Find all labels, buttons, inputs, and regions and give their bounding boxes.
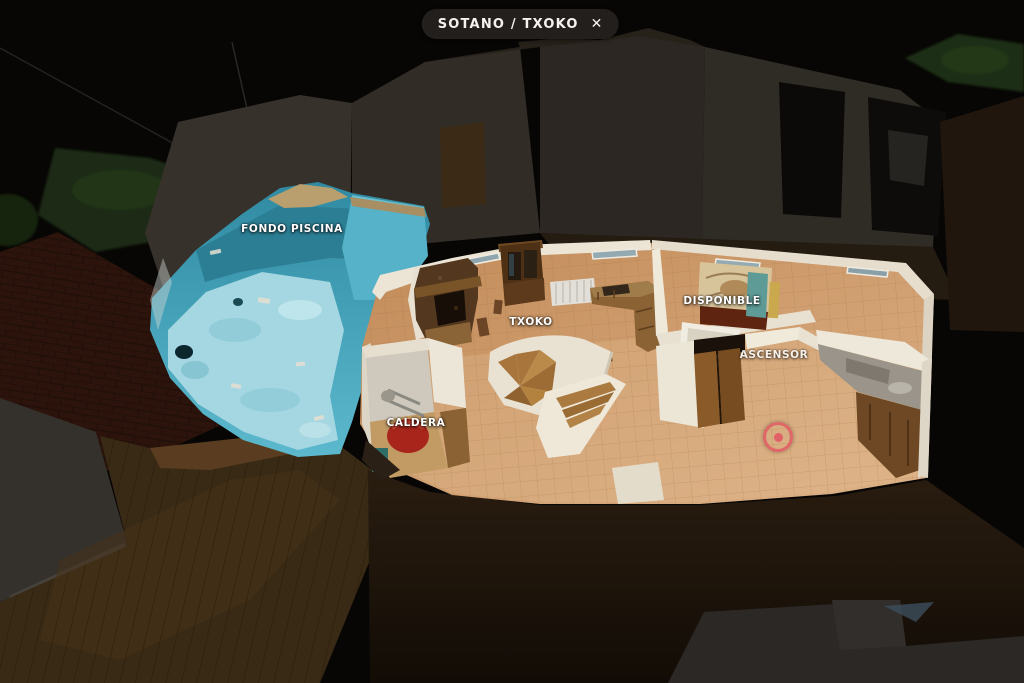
panorama-marker-dot <box>774 433 783 442</box>
fireplace <box>408 258 482 350</box>
panorama-marker[interactable] <box>763 422 793 452</box>
3d-scene-canvas[interactable] <box>0 0 1024 683</box>
close-icon[interactable]: ✕ <box>591 17 603 31</box>
radiator <box>550 278 596 306</box>
floor-badge-label: SOTANO / TXOKO <box>438 17 579 32</box>
dollhouse-viewport[interactable]: FONDO PISCINA TXOKO DISPONIBLE ASCENSOR … <box>0 0 1024 683</box>
basement-floorplan-3d[interactable] <box>360 240 934 504</box>
floor-selector-badge[interactable]: SOTANO / TXOKO ✕ <box>422 9 619 39</box>
china-cabinet <box>498 240 545 306</box>
